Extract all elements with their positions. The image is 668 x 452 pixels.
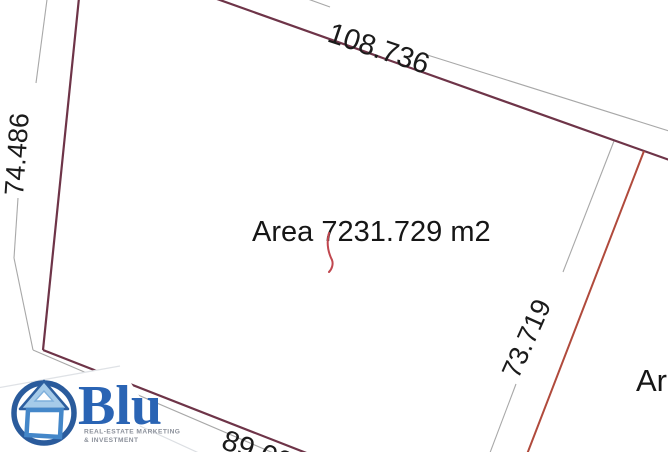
land-plot-image: 108.736 74.486 73.719 89.09 Area 7231.72… — [0, 0, 668, 452]
blu-logo: Blu REAL-ESTATE MARKETING & INVESTMENT — [14, 375, 180, 444]
logo-tagline-line2: & INVESTMENT — [84, 437, 139, 444]
house-body-icon — [27, 410, 62, 437]
house-circle-icon — [14, 381, 74, 443]
site-plan-drawing: 108.736 74.486 73.719 89.09 Area 7231.72… — [0, 0, 668, 452]
dimension-label-left: 74.486 — [0, 112, 35, 196]
area-label: Area 7231.729 m2 — [252, 216, 491, 248]
adjacent-area-label-partial: Ar — [636, 363, 667, 398]
logo-tagline-line1: REAL-ESTATE MARKETING — [84, 429, 180, 436]
